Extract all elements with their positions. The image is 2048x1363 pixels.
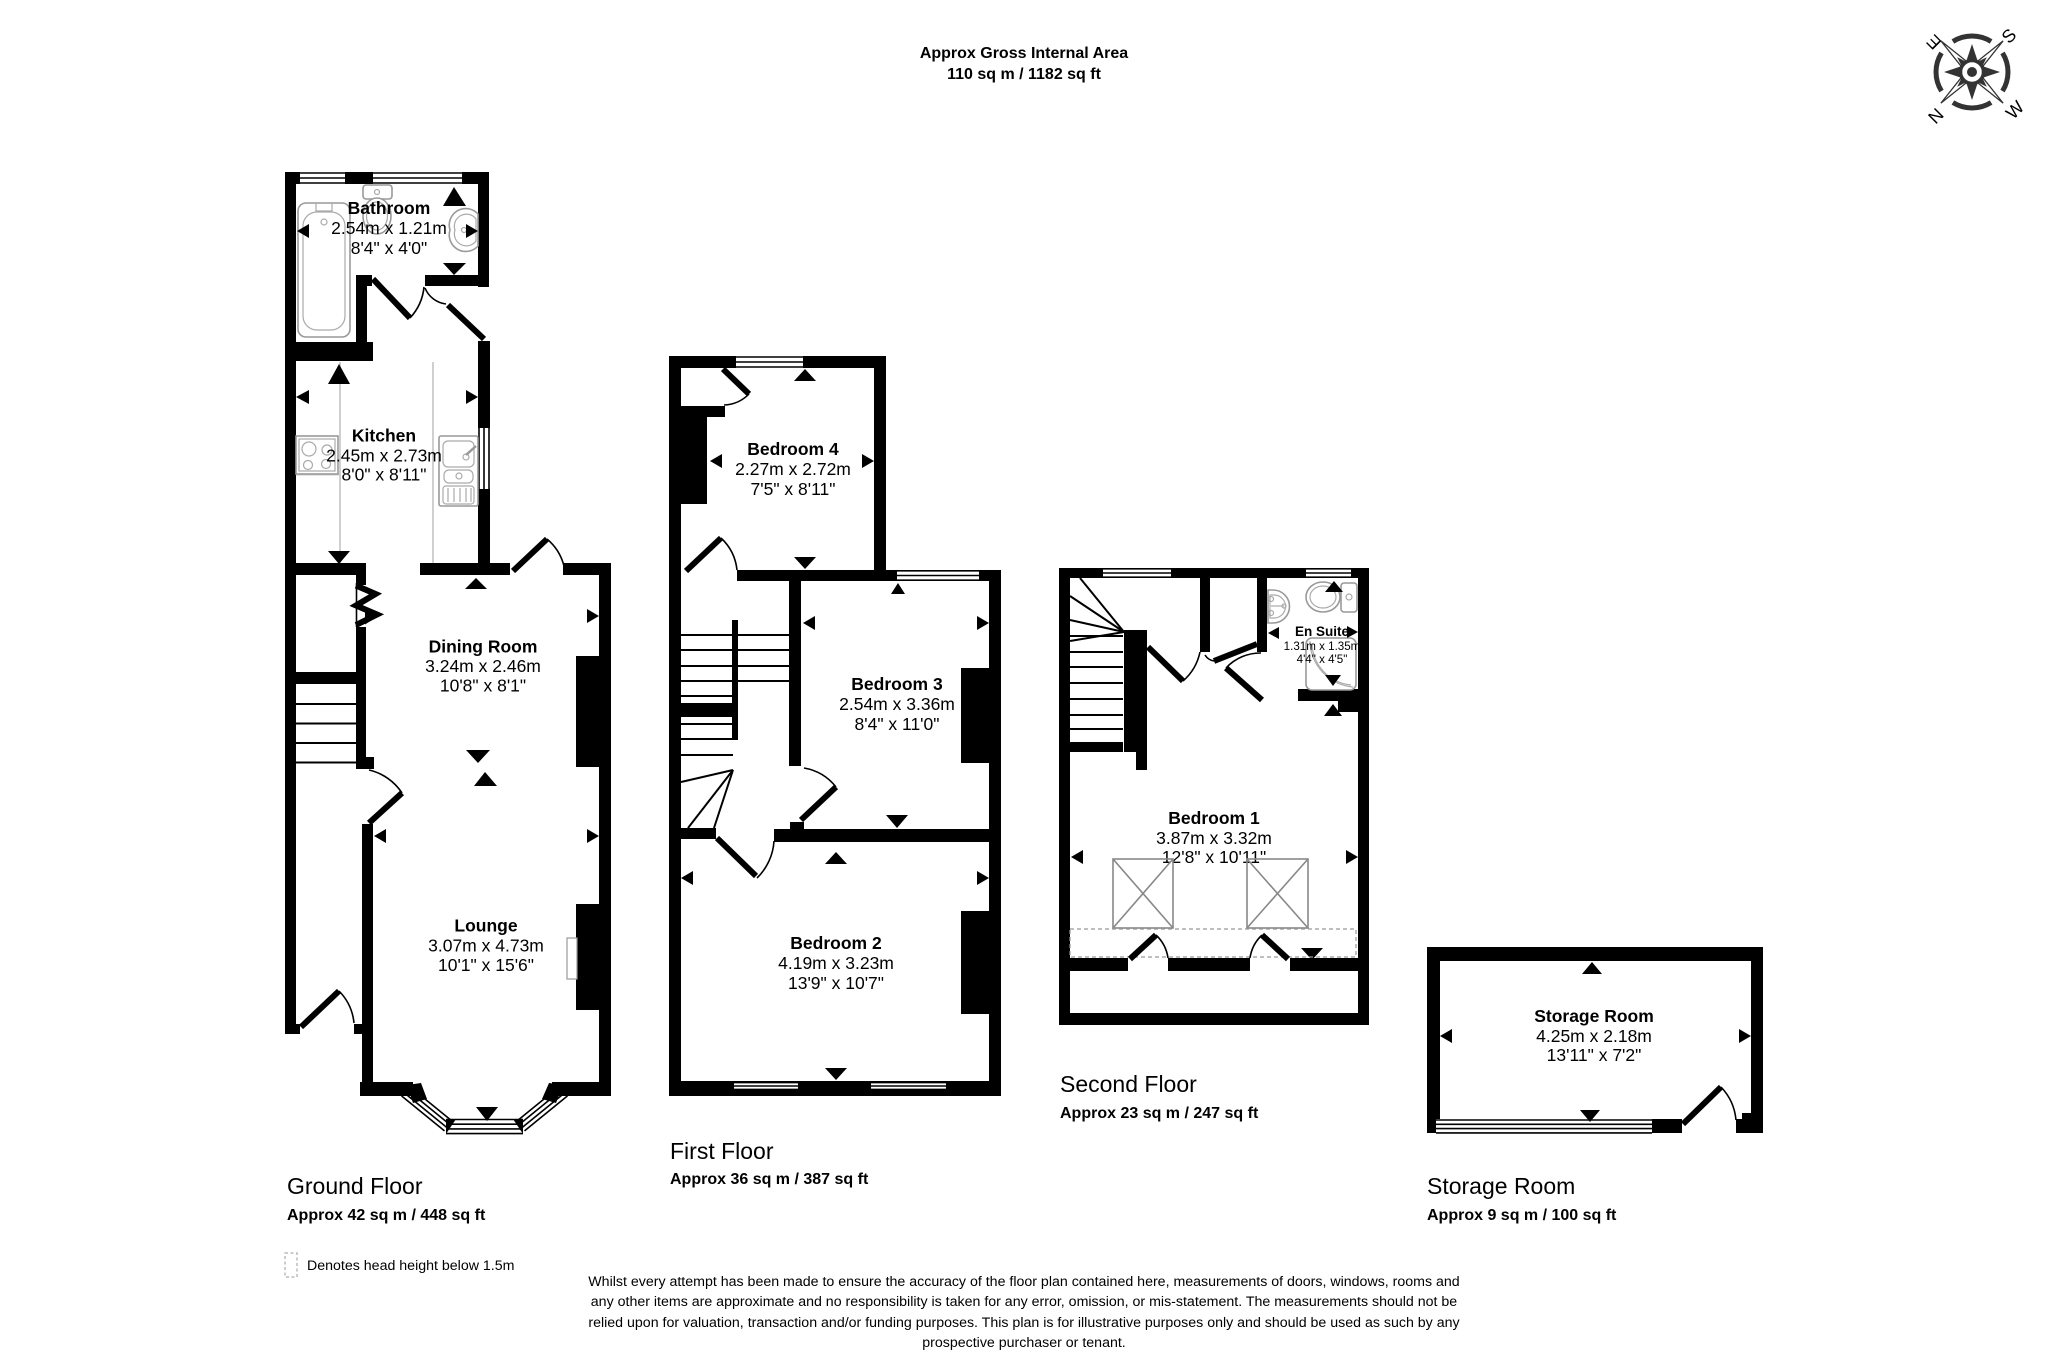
svg-text:Approx Gross Internal Area: Approx Gross Internal Area <box>920 45 1128 62</box>
svg-text:Bedroom 2: Bedroom 2 <box>790 933 882 953</box>
svg-text:Ground Floor: Ground Floor <box>287 1173 423 1199</box>
svg-text:First Floor: First Floor <box>670 1138 774 1164</box>
svg-text:Whilst every attempt has been: Whilst every attempt has been made to en… <box>588 1274 1459 1290</box>
svg-text:3.07m x 4.73m: 3.07m x 4.73m <box>428 936 544 956</box>
svg-text:2.54m x 3.36m: 2.54m x 3.36m <box>839 694 955 714</box>
svg-text:Second Floor: Second Floor <box>1060 1071 1197 1097</box>
svg-text:Approx 23 sq m / 247 sq ft: Approx 23 sq m / 247 sq ft <box>1060 1105 1259 1122</box>
svg-text:Lounge: Lounge <box>454 916 517 936</box>
svg-text:10'1" x 15'6": 10'1" x 15'6" <box>438 955 534 975</box>
svg-text:Storage Room: Storage Room <box>1534 1006 1654 1026</box>
svg-text:prospective purchaser or tenan: prospective purchaser or tenant. <box>922 1335 1125 1351</box>
svg-text:13'11" x 7'2": 13'11" x 7'2" <box>1547 1045 1642 1065</box>
svg-text:Bathroom: Bathroom <box>348 198 431 218</box>
svg-text:Approx 42 sq m / 448 sq ft: Approx 42 sq m / 448 sq ft <box>287 1207 486 1224</box>
svg-text:Approx 9 sq m / 100 sq ft: Approx 9 sq m / 100 sq ft <box>1427 1207 1617 1224</box>
svg-text:Bedroom 4: Bedroom 4 <box>747 439 839 459</box>
svg-text:Bedroom 1: Bedroom 1 <box>1168 808 1260 828</box>
svg-text:Denotes head height below 1.5m: Denotes head height below 1.5m <box>307 1258 514 1274</box>
svg-text:3.24m x 2.46m: 3.24m x 2.46m <box>425 656 541 676</box>
svg-text:En Suite: En Suite <box>1295 624 1349 639</box>
svg-text:110 sq m / 1182 sq ft: 110 sq m / 1182 sq ft <box>947 66 1102 83</box>
svg-text:4.25m x 2.18m: 4.25m x 2.18m <box>1536 1026 1652 1046</box>
svg-text:Kitchen: Kitchen <box>352 426 416 446</box>
svg-text:Storage Room: Storage Room <box>1427 1173 1575 1199</box>
svg-text:4.19m x 3.23m: 4.19m x 3.23m <box>778 953 894 973</box>
svg-text:relied upon for valuation, tra: relied upon for valuation, transaction a… <box>588 1315 1460 1331</box>
svg-text:Dining Room: Dining Room <box>429 637 538 657</box>
svg-text:4'4" x 4'5": 4'4" x 4'5" <box>1297 653 1348 666</box>
svg-text:8'4" x 4'0": 8'4" x 4'0" <box>351 238 428 258</box>
svg-text:any other items are approximat: any other items are approximate and no r… <box>591 1294 1457 1310</box>
svg-text:2.27m x 2.72m: 2.27m x 2.72m <box>735 459 851 479</box>
svg-text:8'0" x 8'11": 8'0" x 8'11" <box>342 465 427 485</box>
svg-text:1.31m x 1.35m: 1.31m x 1.35m <box>1284 640 1361 653</box>
svg-text:13'9" x 10'7": 13'9" x 10'7" <box>788 973 884 993</box>
svg-text:2.45m x 2.73m: 2.45m x 2.73m <box>326 446 442 466</box>
svg-text:7'5" x 8'11": 7'5" x 8'11" <box>751 479 836 499</box>
svg-text:Approx 36 sq m / 387 sq ft: Approx 36 sq m / 387 sq ft <box>670 1171 869 1188</box>
svg-text:10'8" x 8'1": 10'8" x 8'1" <box>440 676 526 696</box>
svg-text:3.87m x 3.32m: 3.87m x 3.32m <box>1156 828 1272 848</box>
svg-text:Bedroom 3: Bedroom 3 <box>851 674 943 694</box>
svg-text:2.54m x 1.21m: 2.54m x 1.21m <box>331 218 447 238</box>
svg-text:8'4" x 11'0": 8'4" x 11'0" <box>855 714 940 734</box>
